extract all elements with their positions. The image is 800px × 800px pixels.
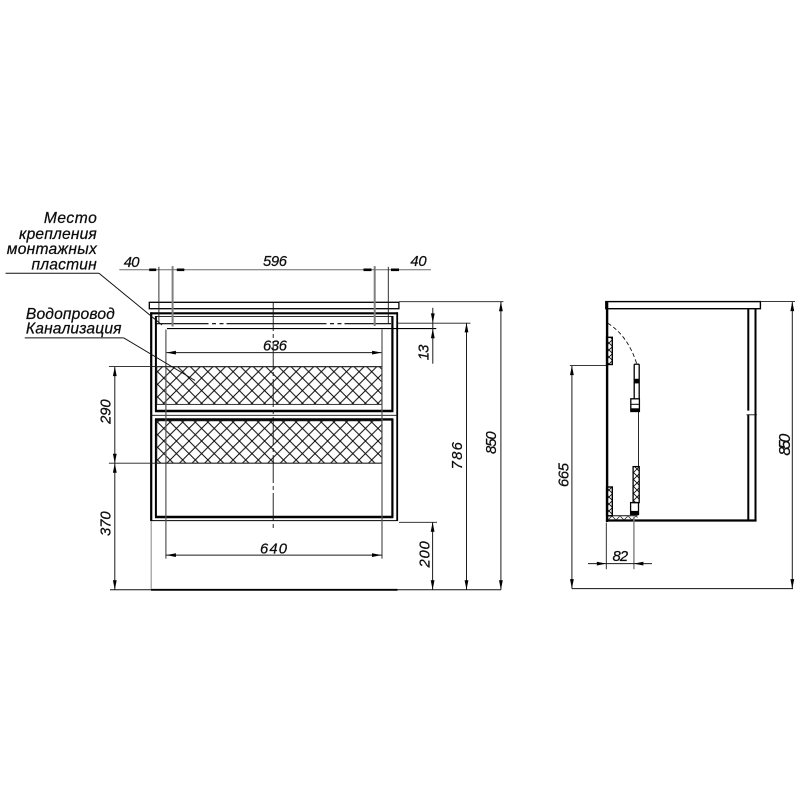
svg-text:850: 850 [484,431,500,454]
svg-text:13: 13 [416,344,432,360]
svg-text:786: 786 [450,441,466,469]
svg-text:850: 850 [777,434,794,456]
svg-text:40: 40 [124,255,141,271]
svg-text:665: 665 [556,462,572,487]
svg-text:Место: Место [44,210,97,227]
svg-text:290: 290 [99,399,115,425]
svg-text:596: 596 [263,254,288,270]
svg-text:пластин: пластин [31,256,97,273]
svg-text:640: 640 [260,542,288,558]
svg-text:40: 40 [410,254,427,270]
svg-text:370: 370 [99,511,115,536]
svg-text:200: 200 [418,540,434,568]
svg-text:636: 636 [263,339,288,355]
svg-text:82: 82 [613,549,629,565]
svg-text:Канализация: Канализация [26,321,122,338]
